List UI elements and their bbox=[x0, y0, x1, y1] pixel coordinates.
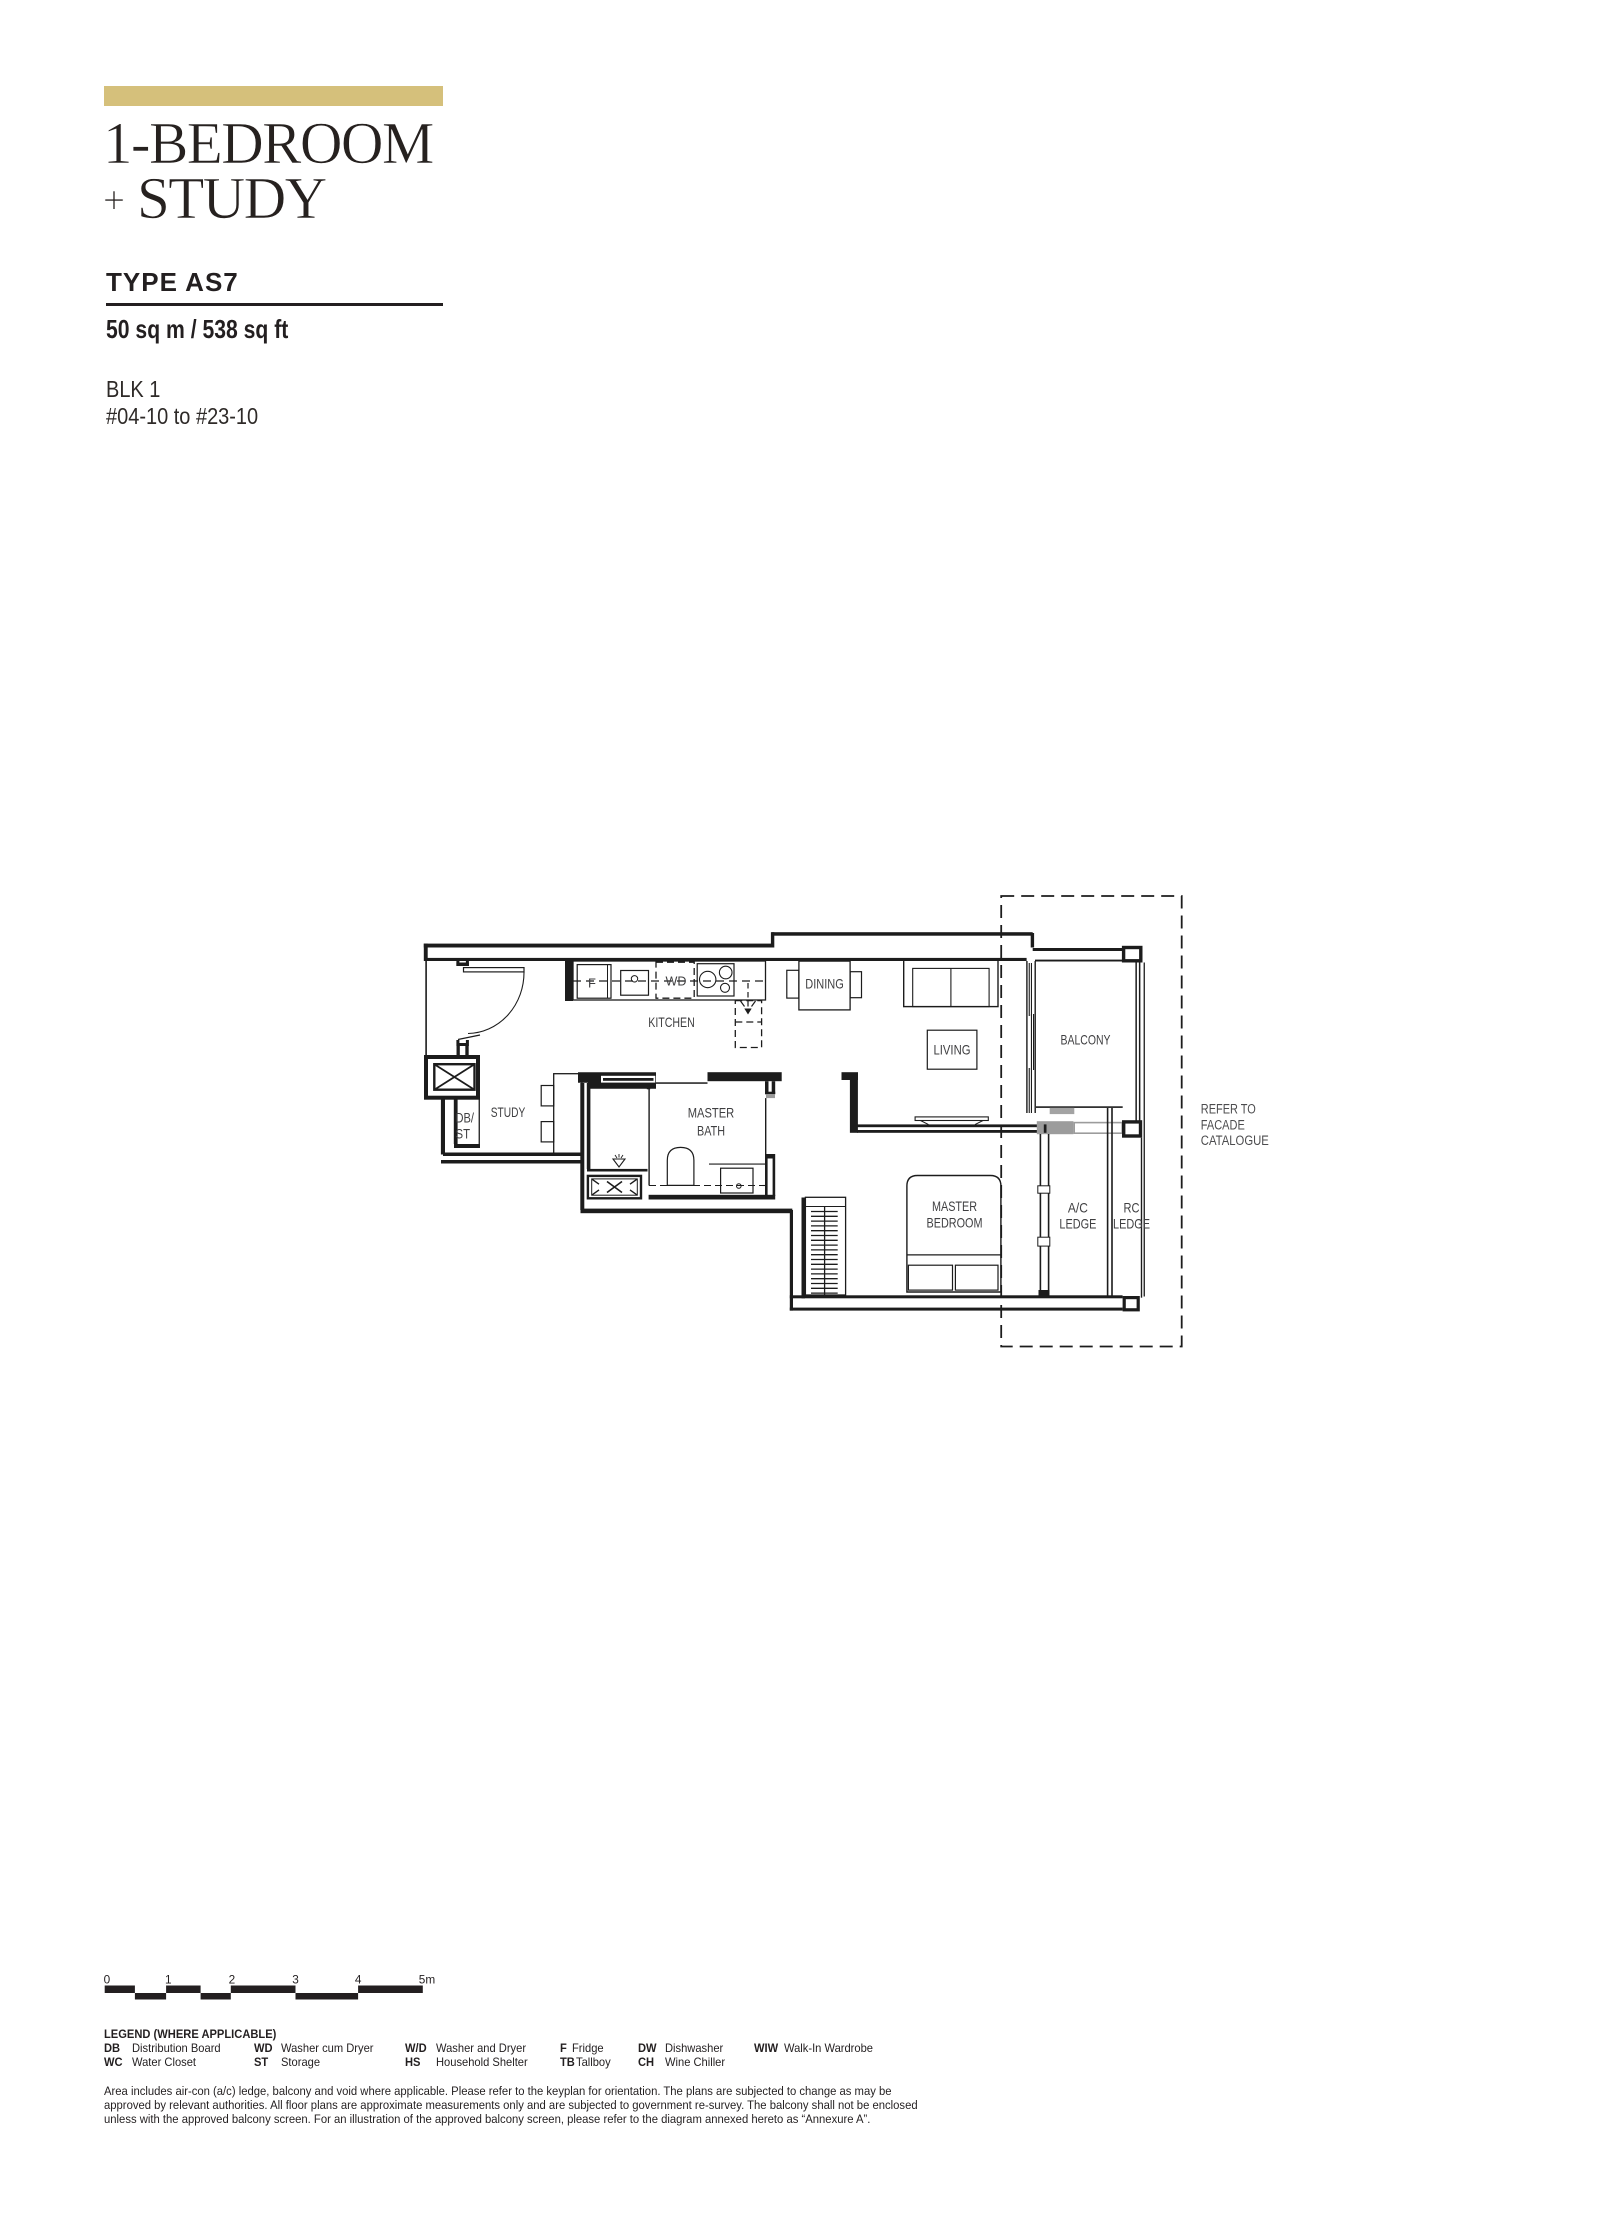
svg-text:F: F bbox=[588, 976, 596, 991]
svg-text:LEDGE: LEDGE bbox=[1059, 1216, 1096, 1232]
svg-text:FACADE: FACADE bbox=[1201, 1117, 1245, 1132]
svg-text:RC: RC bbox=[1124, 1200, 1140, 1216]
svg-text:KITCHEN: KITCHEN bbox=[648, 1014, 695, 1030]
svg-text:REFER TO: REFER TO bbox=[1201, 1102, 1256, 1117]
svg-text:DINING: DINING bbox=[805, 976, 844, 992]
svg-text:3: 3 bbox=[292, 1972, 299, 1986]
svg-text:CATALOGUE: CATALOGUE bbox=[1201, 1133, 1269, 1148]
svg-text:2: 2 bbox=[229, 1972, 236, 1986]
svg-text:BEDROOM: BEDROOM bbox=[927, 1215, 983, 1231]
svg-text:0: 0 bbox=[104, 1972, 111, 1986]
svg-text:MASTER: MASTER bbox=[932, 1198, 977, 1214]
svg-text:A/C: A/C bbox=[1068, 1200, 1088, 1216]
svg-text:MASTER: MASTER bbox=[688, 1104, 735, 1120]
svg-text:BALCONY: BALCONY bbox=[1061, 1031, 1111, 1047]
svg-text:1: 1 bbox=[165, 1972, 172, 1986]
svg-text:BATH: BATH bbox=[697, 1122, 725, 1138]
svg-text:WD: WD bbox=[666, 974, 687, 989]
svg-text:STUDY: STUDY bbox=[491, 1104, 526, 1120]
svg-text:DB/: DB/ bbox=[456, 1110, 475, 1126]
svg-text:4: 4 bbox=[355, 1972, 362, 1986]
svg-text:ST: ST bbox=[456, 1126, 471, 1142]
svg-text:LIVING: LIVING bbox=[934, 1041, 971, 1057]
svg-text:5m: 5m bbox=[419, 1972, 436, 1986]
svg-text:LEDGE: LEDGE bbox=[1113, 1216, 1150, 1232]
